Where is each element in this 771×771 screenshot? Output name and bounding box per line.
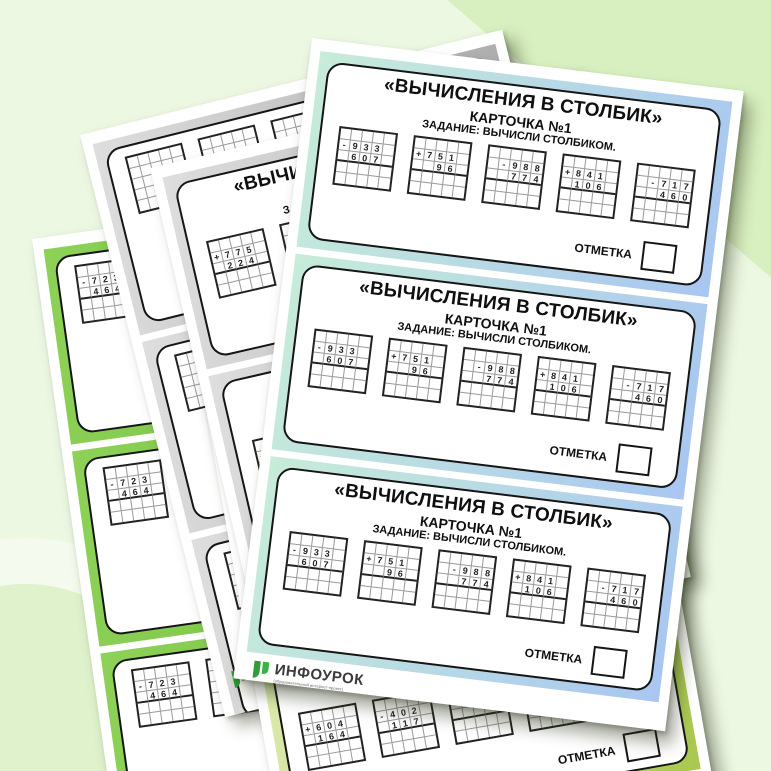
grid-cell bbox=[477, 601, 489, 613]
grid-cell bbox=[453, 186, 465, 198]
math-grid-1: -933607 bbox=[307, 328, 373, 394]
mark-label: ОТМЕТКА bbox=[574, 240, 633, 261]
grid-cell bbox=[425, 735, 438, 748]
grid-cell bbox=[183, 707, 195, 719]
math-grid-3: -988774 bbox=[431, 549, 497, 615]
infourok-logo-icon bbox=[251, 660, 271, 682]
mark-row: ОТМЕТКА bbox=[573, 233, 678, 274]
mark-label: ОТМЕТКА bbox=[524, 645, 583, 666]
math-grid-1: +604164 bbox=[298, 703, 366, 771]
math-grid-2: +75196 bbox=[407, 135, 473, 201]
math-grid-5: -717460 bbox=[605, 365, 671, 431]
mark-box bbox=[640, 241, 677, 274]
math-grid-5: -717460 bbox=[630, 163, 696, 229]
grid-cell bbox=[502, 398, 514, 410]
grid-cell bbox=[378, 177, 390, 189]
grid-cell bbox=[403, 591, 415, 603]
mark-row: ОТМЕТКА bbox=[548, 435, 653, 476]
worksheet-card: «ВЫЧИСЛЕНИЯ В СТОЛБИК» КАРТОЧКА №1 ЗАДАН… bbox=[282, 264, 698, 490]
cards-container: «ВЫЧИСЛЕНИЯ В СТОЛБИК» КАРТОЧКА №1 ЗАДАН… bbox=[247, 51, 733, 702]
grid-cell bbox=[154, 505, 166, 517]
mark-box bbox=[590, 646, 627, 679]
grid-cell bbox=[676, 214, 688, 226]
grid-cell bbox=[527, 196, 539, 208]
grid-cell bbox=[353, 380, 365, 392]
math-grid-5: -717460 bbox=[580, 568, 646, 634]
math-grid-1: -933607 bbox=[332, 126, 398, 192]
math-grid-1: +775224 bbox=[206, 228, 277, 299]
mark-box bbox=[622, 728, 661, 762]
math-grid-1: -933607 bbox=[283, 531, 349, 597]
grid-cell bbox=[328, 582, 340, 594]
worksheet-card: «ВЫЧИСЛЕНИЯ В СТОЛБИК» КАРТОЧКА №1 ЗАДАН… bbox=[306, 61, 722, 287]
grid-cell bbox=[428, 389, 440, 401]
math-grid-1: -723464 bbox=[102, 459, 169, 526]
grid-cell bbox=[577, 407, 589, 419]
mark-row: ОТМЕТКА bbox=[555, 728, 660, 771]
grid-cell bbox=[602, 205, 614, 217]
card-frame: «ВЫЧИСЛЕНИЯ В СТОЛБИК» КАРТОЧКА №1 ЗАДАН… bbox=[296, 51, 732, 297]
grid-cell bbox=[261, 273, 274, 286]
grid-cell bbox=[351, 748, 364, 761]
mark-label: ОТМЕТКА bbox=[549, 443, 608, 464]
math-grid-1: -723464 bbox=[131, 661, 198, 728]
grid-cell bbox=[552, 610, 564, 622]
math-grid-2: +75196 bbox=[382, 338, 448, 404]
card-frame: «ВЫЧИСЛЕНИЯ В СТОЛБИК» КАРТОЧКА №1 ЗАДАН… bbox=[272, 254, 708, 500]
math-grid-3: -988774 bbox=[456, 347, 522, 413]
worksheet-card: «ВЫЧИСЛЕНИЯ В СТОЛБИК» КАРТОЧКА №1 ЗАДАН… bbox=[257, 466, 673, 692]
front-page: «ВЫЧИСЛЕНИЯ В СТОЛБИК» КАРТОЧКА №1 ЗАДАН… bbox=[233, 38, 743, 731]
grid-cell bbox=[651, 416, 663, 428]
worksheet-preview-collage: -723464 -723464 -723464 bbox=[0, 0, 771, 771]
mark-box bbox=[615, 443, 652, 476]
grid-cell bbox=[626, 619, 638, 631]
math-grid-4: +841106 bbox=[506, 558, 572, 624]
math-grid-4: +841106 bbox=[556, 153, 622, 219]
grid-cell bbox=[499, 722, 512, 735]
mark-row: ОТМЕТКА bbox=[523, 638, 628, 679]
math-grid-4: +841106 bbox=[531, 356, 597, 422]
math-grid-2: +75196 bbox=[357, 540, 423, 606]
mark-label: ОТМЕТКА bbox=[557, 743, 617, 767]
math-grid-3: -988774 bbox=[481, 144, 547, 210]
